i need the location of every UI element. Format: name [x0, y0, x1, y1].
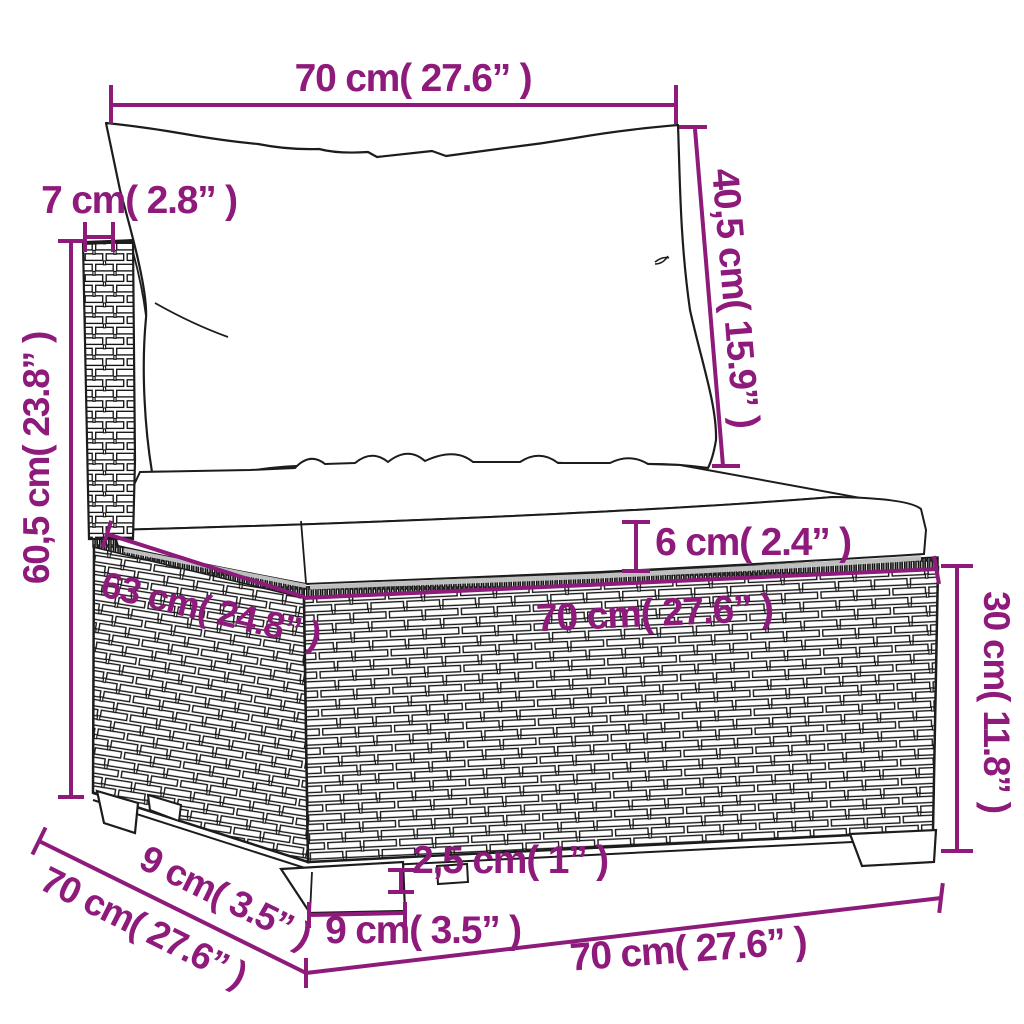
svg-text:30 cm( 11.8” ): 30 cm( 11.8” )	[976, 591, 1017, 813]
svg-text:9 cm( 3.5” ): 9 cm( 3.5” )	[325, 909, 521, 952]
svg-text:2,5 cm( 1” ): 2,5 cm( 1” )	[412, 839, 608, 882]
svg-text:70 cm( 27.6” ): 70 cm( 27.6” )	[295, 57, 532, 100]
svg-text:6 cm( 2.4” ): 6 cm( 2.4” )	[655, 521, 851, 564]
svg-text:7 cm( 2.8” ): 7 cm( 2.8” )	[41, 179, 237, 222]
svg-text:60,5 cm( 23.8” ): 60,5 cm( 23.8” )	[16, 332, 57, 584]
